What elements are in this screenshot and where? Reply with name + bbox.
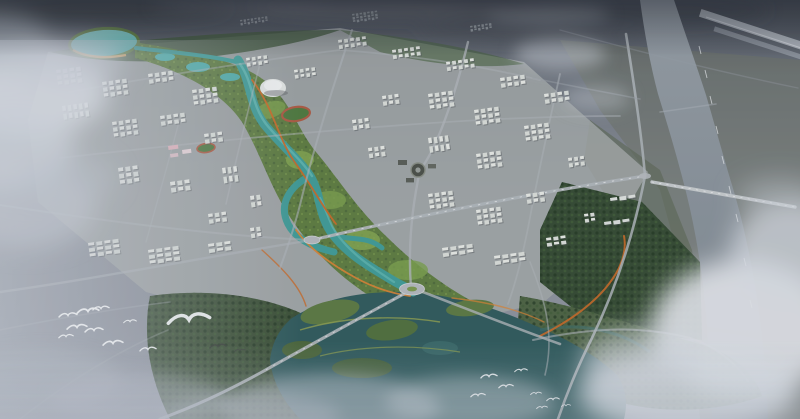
blue-cast bbox=[0, 0, 800, 419]
masterplan-scene bbox=[0, 0, 800, 419]
aerial-render bbox=[0, 0, 800, 419]
